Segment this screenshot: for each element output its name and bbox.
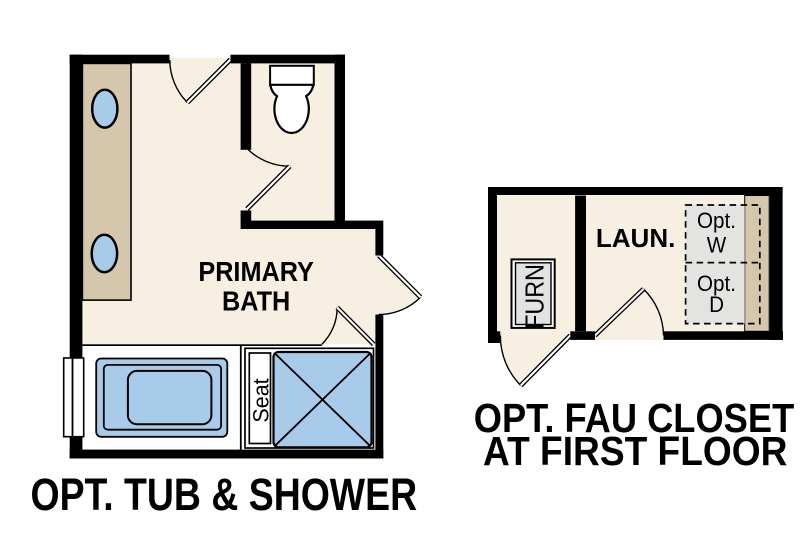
svg-text:W: W xyxy=(707,233,727,258)
svg-text:PRIMARY: PRIMARY xyxy=(198,256,314,288)
svg-text:Opt.: Opt. xyxy=(697,208,736,233)
svg-text:D: D xyxy=(709,292,724,317)
svg-text:LAUN.: LAUN. xyxy=(596,223,675,253)
svg-text:AT FIRST FLOOR: AT FIRST FLOOR xyxy=(483,429,787,474)
svg-text:OPT. TUB & SHOWER: OPT. TUB & SHOWER xyxy=(30,470,417,520)
svg-text:BATH: BATH xyxy=(222,285,290,317)
svg-text:FURN: FURN xyxy=(522,264,550,329)
svg-text:Seat: Seat xyxy=(248,378,273,422)
